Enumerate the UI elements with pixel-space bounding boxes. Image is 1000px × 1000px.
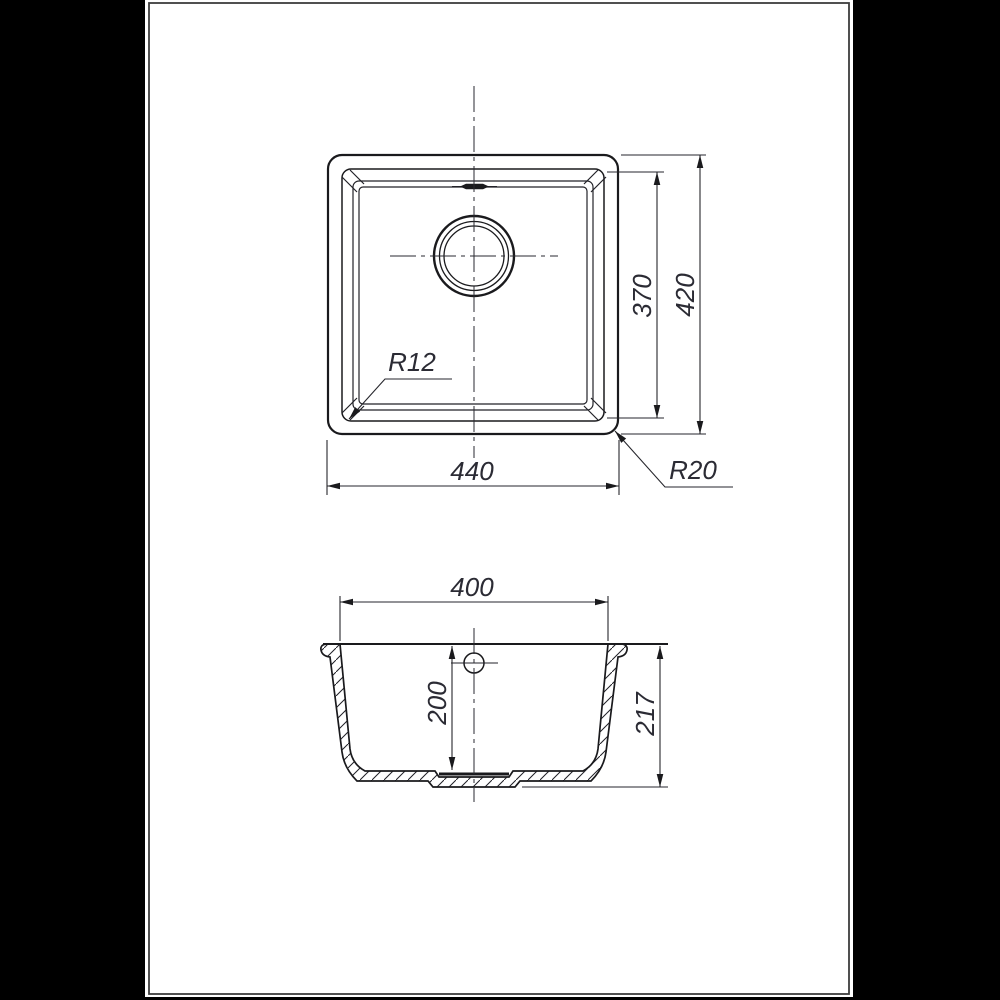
dim-label-440: 440 (450, 456, 494, 486)
dim-label-200: 200 (422, 681, 452, 726)
dim-label-400: 400 (450, 572, 494, 602)
drawing-sheet (145, 0, 853, 997)
dim-label-370: 370 (627, 274, 657, 318)
radius-label-r12: R12 (388, 347, 436, 377)
radius-label-r20: R20 (669, 455, 717, 485)
drawing-canvas: 440 370 420 R12 (0, 0, 1000, 1000)
dim-label-420: 420 (670, 273, 700, 317)
dim-label-217: 217 (630, 691, 660, 737)
sink-technical-drawing: 440 370 420 R12 (0, 0, 1000, 1000)
